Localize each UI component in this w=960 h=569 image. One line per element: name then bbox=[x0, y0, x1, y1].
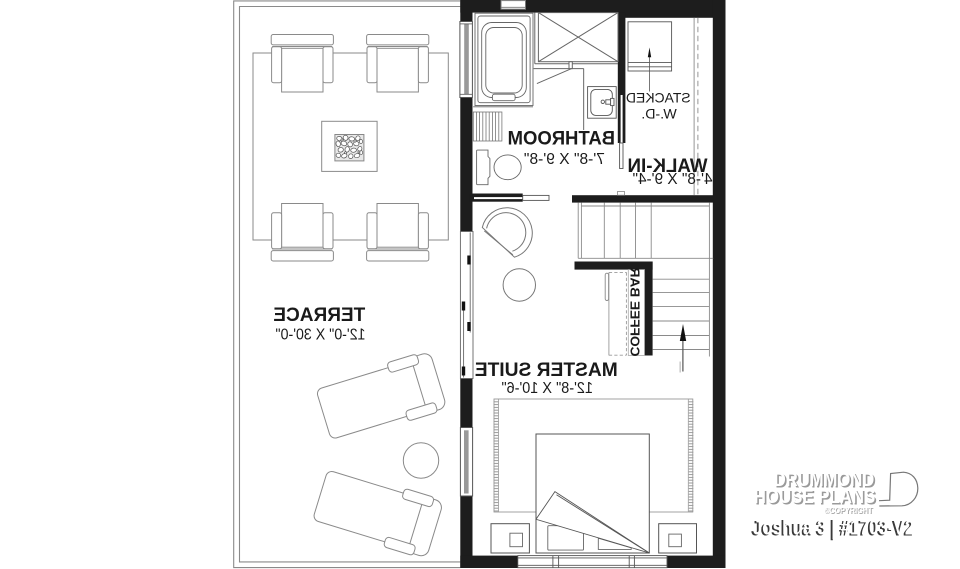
svg-text:©COPYRIGHT: ©COPYRIGHT bbox=[824, 505, 873, 515]
svg-text:4'-8" X 9'-4": 4'-8" X 9'-4" bbox=[633, 171, 713, 188]
svg-text:7'-8" X 9'-8": 7'-8" X 9'-8" bbox=[524, 151, 605, 168]
svg-text:12'-8" X 10'-6": 12'-8" X 10'-6" bbox=[501, 380, 593, 397]
svg-text:COFFEE BAR: COFFEE BAR bbox=[628, 267, 643, 357]
svg-text:W.-D.: W.-D. bbox=[641, 106, 677, 122]
svg-text:MASTER SUITE: MASTER SUITE bbox=[475, 360, 618, 381]
svg-text:BATHROOM: BATHROOM bbox=[508, 129, 616, 150]
svg-text:TERRACE: TERRACE bbox=[273, 305, 365, 326]
svg-text:STACKED: STACKED bbox=[626, 90, 691, 106]
svg-text:Joshua 3 | #1703-V2: Joshua 3 | #1703-V2 bbox=[753, 516, 915, 540]
svg-text:12'-0" X 30'-0": 12'-0" X 30'-0" bbox=[276, 327, 366, 344]
